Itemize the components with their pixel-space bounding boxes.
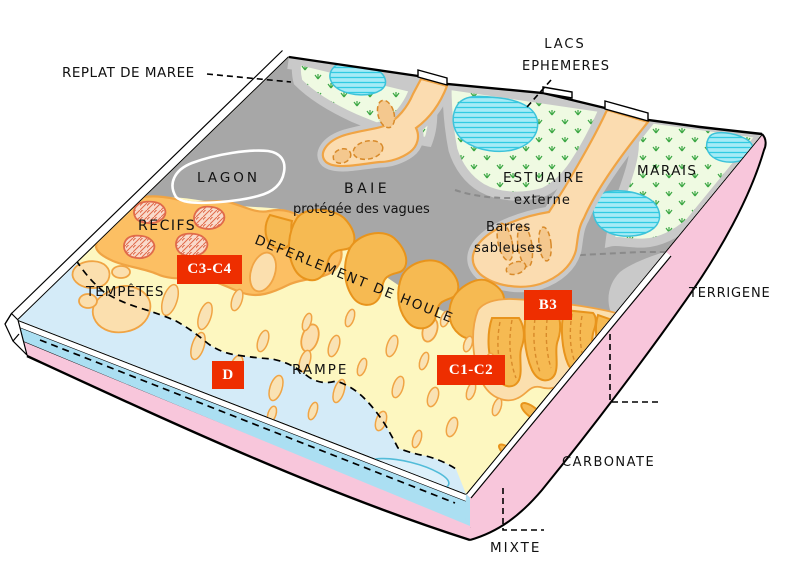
reef-patch — [176, 234, 207, 257]
lake — [453, 96, 537, 151]
reef-patch — [124, 236, 154, 259]
label-tempetes: TEMPÊTES — [86, 285, 164, 300]
label-barres: Barres — [486, 221, 531, 235]
label-replat-de-maree: REPLAT DE MAREE — [62, 66, 195, 81]
label-barres-sub: sableuses — [474, 242, 543, 256]
facies-code-c1-c2: C1-C2 — [437, 355, 505, 385]
label-ephemeres: EPHEMERES — [514, 60, 618, 74]
label-terrigene: TERRIGENE — [689, 287, 770, 301]
label-rampe: RAMPE — [292, 363, 348, 378]
diagram-svg — [0, 0, 791, 565]
facies-code-c3-c4: C3-C4 — [177, 255, 242, 284]
label-baie-sub: protégée des vagues — [293, 203, 430, 217]
label-baie: BAIE — [344, 182, 390, 197]
label-lagon: LAGON — [197, 171, 260, 186]
label-lacs: LACS — [524, 38, 606, 52]
label-mixte: MIXTE — [490, 541, 541, 556]
label-estuaire-sub: externe — [514, 194, 571, 208]
label-recifs: RECIFS — [138, 219, 196, 234]
reef-patch — [194, 207, 224, 229]
label-marais: MARAIS — [637, 164, 698, 179]
coastal-environments-block-diagram: REPLAT DE MAREE LACS EPHEMERES LAGON BAI… — [0, 0, 791, 565]
facies-code-b3: B3 — [524, 290, 572, 320]
label-carbonate: CARBONATE — [562, 456, 655, 470]
facies-code-d: D — [212, 361, 244, 389]
label-estuaire: ESTUAIRE — [503, 171, 585, 186]
